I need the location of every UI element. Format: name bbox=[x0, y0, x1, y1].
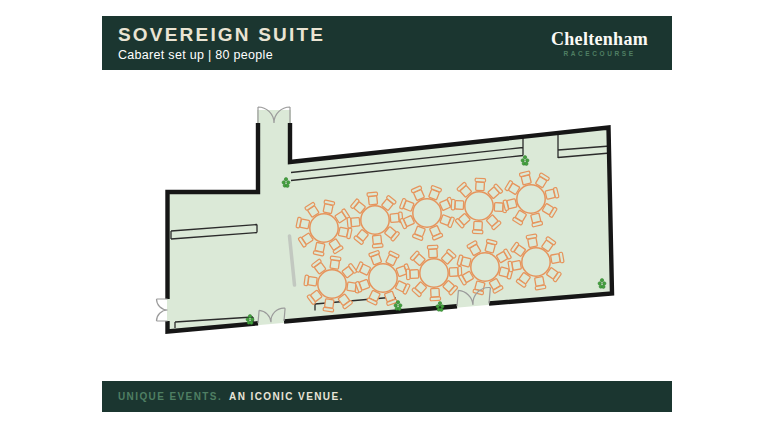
chair bbox=[430, 288, 441, 301]
chair bbox=[475, 178, 486, 191]
chair bbox=[451, 199, 464, 210]
double-door-left bbox=[157, 299, 168, 321]
chair bbox=[406, 269, 419, 280]
chair bbox=[427, 245, 438, 258]
page: SOVEREIGN SUITE Cabaret set up | 80 peop… bbox=[0, 0, 768, 432]
chair bbox=[367, 192, 379, 205]
chair bbox=[323, 299, 335, 312]
chair bbox=[347, 216, 360, 228]
footer-bar: UNIQUE EVENTS. AN ICONIC VENUE. bbox=[102, 381, 672, 412]
chair bbox=[371, 235, 383, 248]
footer-highlight: UNIQUE EVENTS. bbox=[118, 391, 222, 402]
chair bbox=[304, 275, 317, 287]
footer-tagline: AN ICONIC VENUE. bbox=[229, 391, 344, 402]
chair bbox=[329, 256, 341, 269]
chair bbox=[472, 221, 483, 234]
floor-plan bbox=[0, 0, 768, 432]
